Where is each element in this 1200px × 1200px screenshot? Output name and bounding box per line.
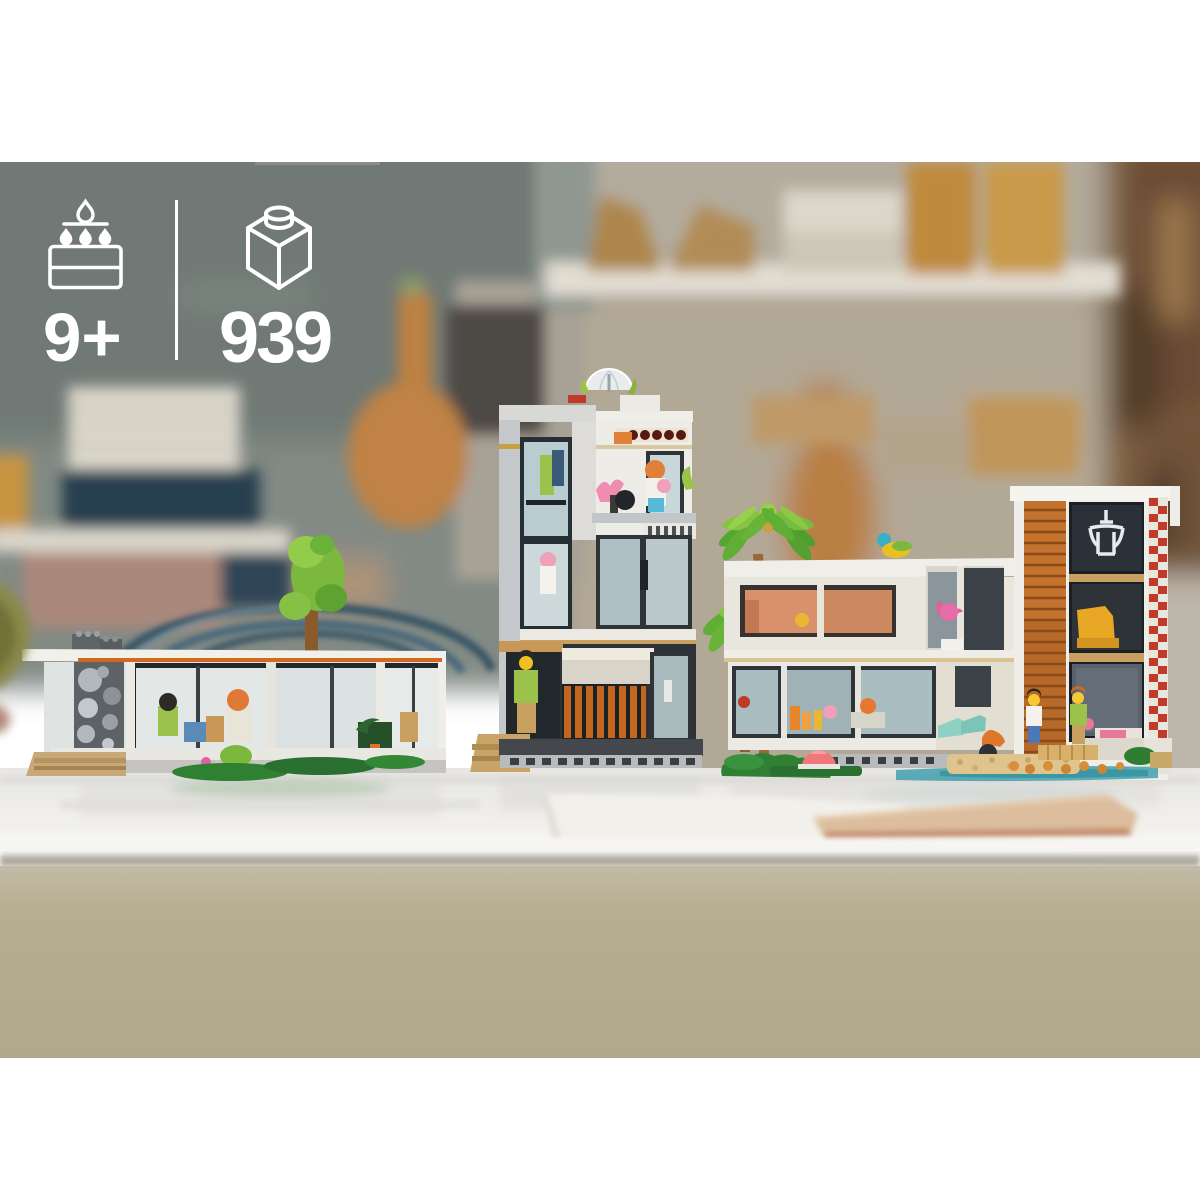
svg-text:9+: 9+ — [43, 299, 122, 376]
svg-text:939: 939 — [219, 298, 331, 378]
